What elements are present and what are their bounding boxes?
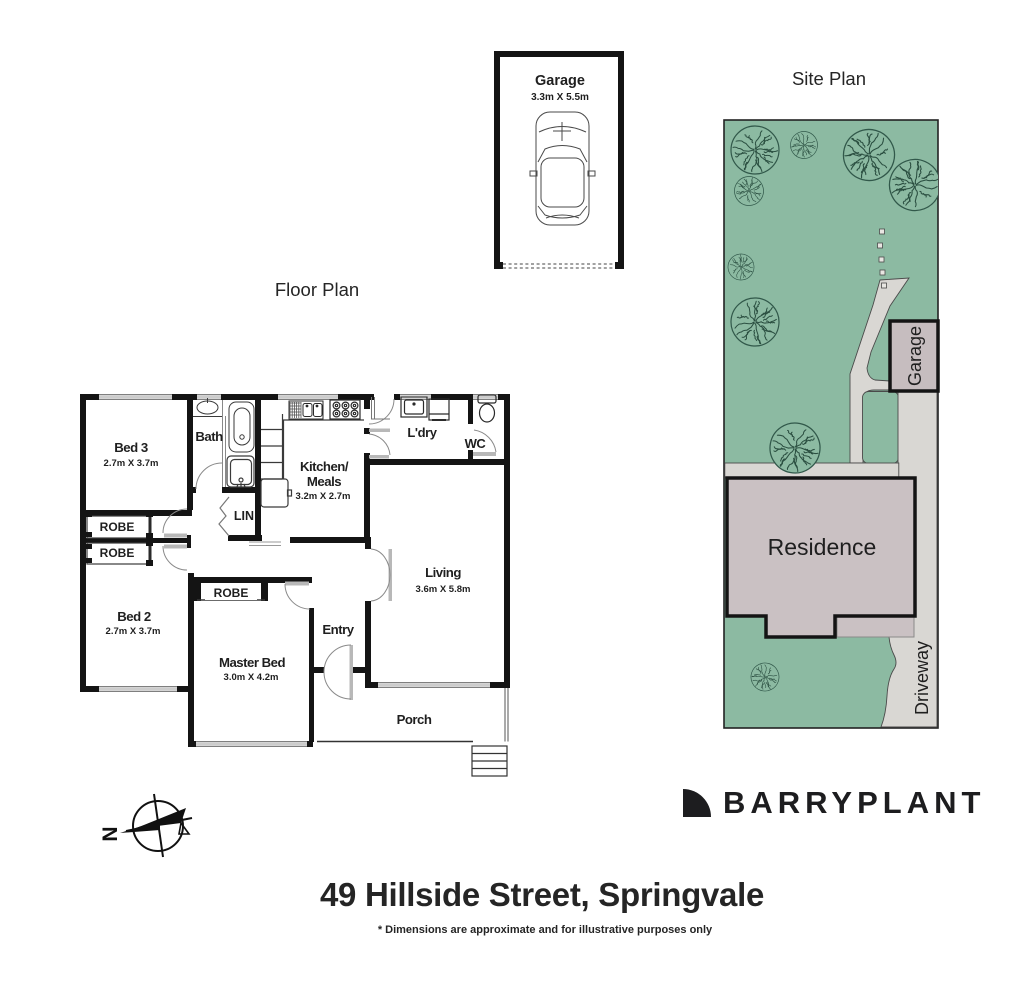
svg-text:3.2m X 2.7m: 3.2m X 2.7m: [296, 491, 351, 502]
svg-text:LIN: LIN: [234, 509, 254, 523]
svg-text:2.7m X 3.7m: 2.7m X 3.7m: [104, 458, 159, 469]
svg-text:Residence: Residence: [768, 534, 877, 560]
svg-text:Living: Living: [425, 565, 461, 580]
svg-text:Master Bed: Master Bed: [219, 655, 286, 670]
svg-text:2.7m X 3.7m: 2.7m X 3.7m: [106, 626, 161, 637]
svg-text:Meals: Meals: [307, 474, 341, 489]
svg-text:WC: WC: [465, 436, 487, 451]
svg-text:Garage: Garage: [535, 73, 585, 89]
svg-text:ROBE: ROBE: [100, 520, 135, 534]
svg-text:L'dry: L'dry: [407, 425, 437, 440]
svg-text:ROBE: ROBE: [100, 546, 135, 560]
svg-text:N: N: [99, 826, 122, 841]
svg-text:Driveway: Driveway: [912, 641, 932, 715]
svg-text:* Dimensions are approximate a: * Dimensions are approximate and for ill…: [378, 924, 713, 936]
svg-text:ROBE: ROBE: [214, 586, 249, 600]
svg-text:49 Hillside Street, Springvale: 49 Hillside Street, Springvale: [320, 876, 764, 913]
svg-text:Entry: Entry: [322, 622, 354, 637]
svg-text:BARRYPLANT: BARRYPLANT: [723, 785, 985, 820]
svg-text:Floor Plan: Floor Plan: [275, 279, 359, 300]
svg-text:Bed 3: Bed 3: [114, 440, 148, 455]
svg-text:Porch: Porch: [397, 712, 432, 727]
svg-text:3.0m X 4.2m: 3.0m X 4.2m: [224, 672, 279, 683]
svg-text:Site Plan: Site Plan: [792, 68, 866, 89]
svg-text:Kitchen/: Kitchen/: [300, 459, 349, 474]
svg-text:Bath: Bath: [195, 429, 223, 444]
svg-text:Garage: Garage: [905, 326, 925, 386]
svg-text:3.3m X 5.5m: 3.3m X 5.5m: [531, 92, 589, 103]
svg-text:Bed 2: Bed 2: [117, 609, 151, 624]
svg-text:3.6m X 5.8m: 3.6m X 5.8m: [416, 584, 471, 595]
